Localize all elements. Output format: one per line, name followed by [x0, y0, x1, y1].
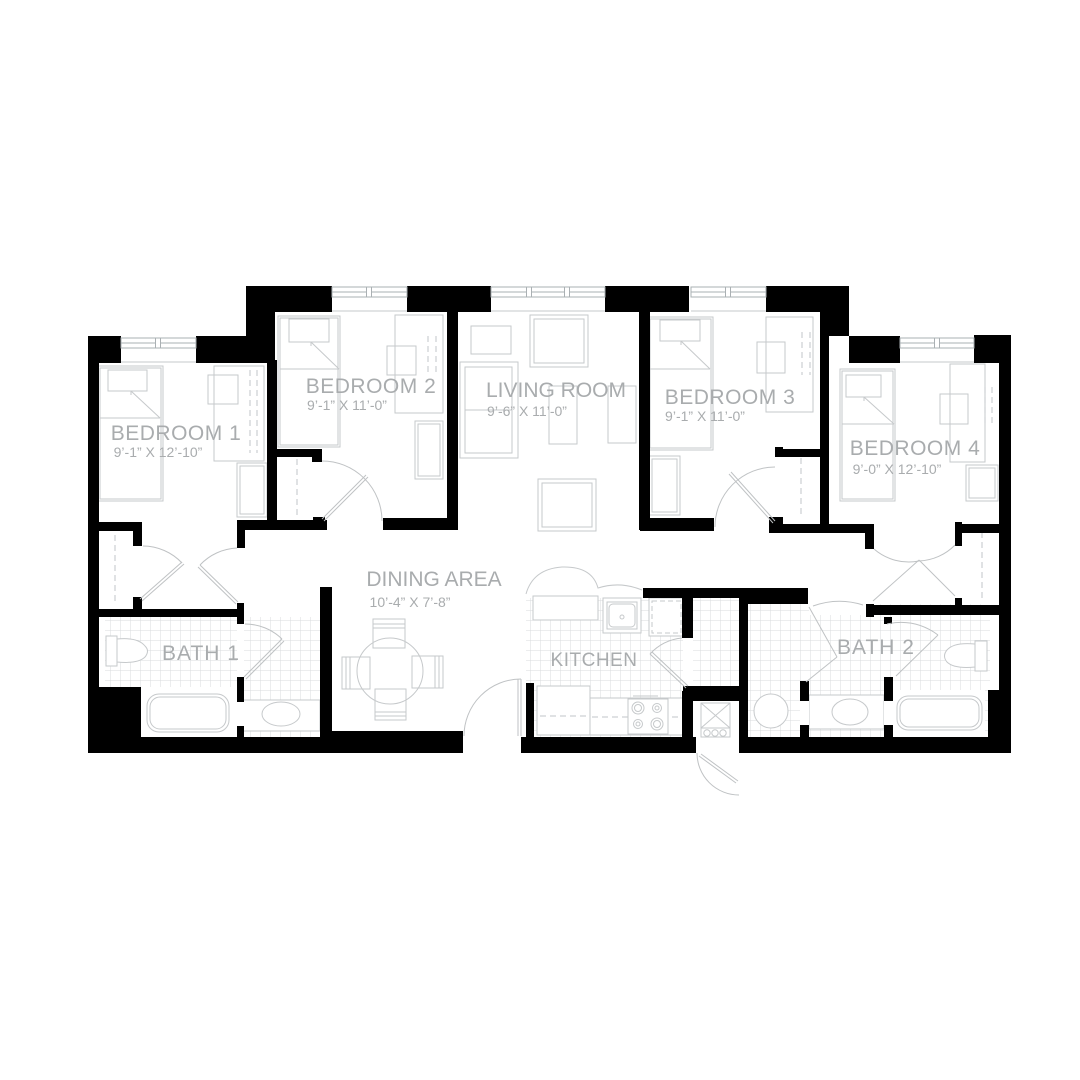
- svg-text:9’-0” X 12’-10”: 9’-0” X 12’-10”: [853, 461, 942, 477]
- svg-text:KITCHEN: KITCHEN: [551, 650, 638, 671]
- svg-text:BATH 1: BATH 1: [162, 642, 240, 665]
- svg-text:9’-6” X 11’-0”: 9’-6” X 11’-0”: [487, 403, 567, 419]
- svg-text:9’-1” X 11’-0”: 9’-1” X 11’-0”: [665, 408, 745, 424]
- svg-text:BEDROOM 3: BEDROOM 3: [665, 386, 796, 409]
- svg-text:9’-1” X 12’-10”: 9’-1” X 12’-10”: [114, 444, 203, 460]
- svg-text:BEDROOM 2: BEDROOM 2: [306, 375, 437, 398]
- svg-text:BEDROOM 4: BEDROOM 4: [850, 437, 981, 460]
- svg-text:DINING AREA: DINING AREA: [366, 568, 501, 591]
- svg-text:BATH 2: BATH 2: [837, 636, 915, 659]
- svg-text:BEDROOM 1: BEDROOM 1: [111, 422, 242, 445]
- svg-text:LIVING ROOM: LIVING ROOM: [486, 379, 626, 402]
- svg-text:10’-4” X 7’-8”: 10’-4” X 7’-8”: [370, 594, 451, 610]
- svg-text:9’-1” X 11’-0”: 9’-1” X 11’-0”: [307, 397, 387, 413]
